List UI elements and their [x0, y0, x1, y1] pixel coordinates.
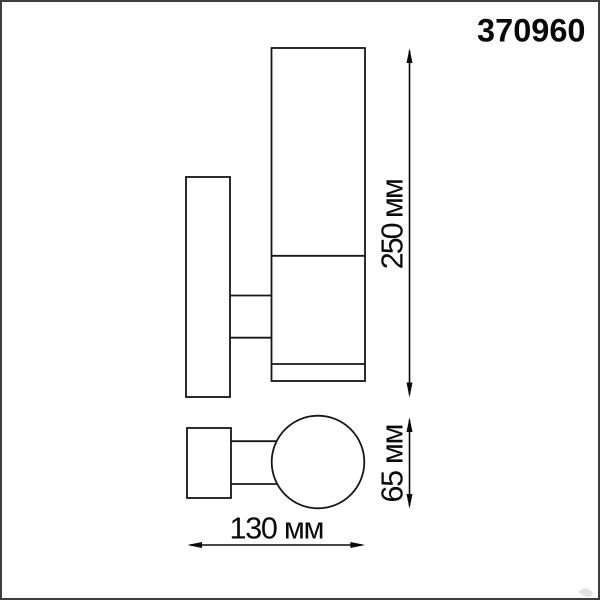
svg-text:65 мм: 65 мм: [376, 424, 410, 503]
svg-text:130 мм: 130 мм: [230, 512, 325, 546]
svg-text:370960: 370960: [477, 13, 585, 49]
svg-text:250 мм: 250 мм: [376, 178, 410, 269]
